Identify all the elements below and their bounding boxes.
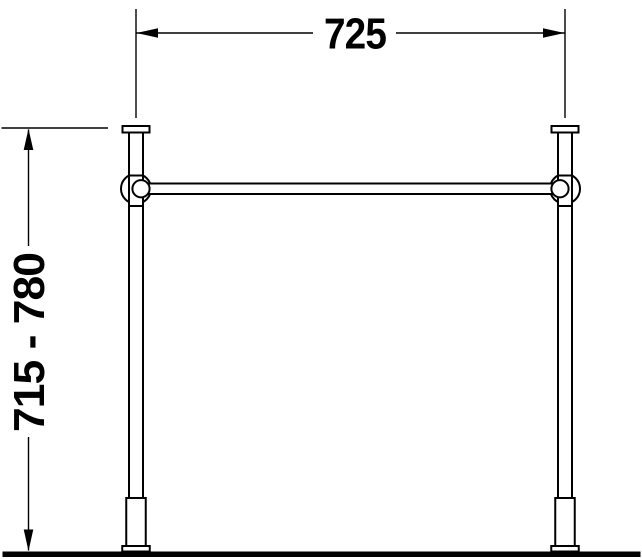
width-dimension-label: 725	[324, 10, 386, 59]
height-dimension: 715 - 780	[2, 128, 109, 551]
right-leg-top-cap	[552, 126, 579, 133]
width-arrow-left-icon	[137, 28, 159, 38]
right-foot-plate	[551, 546, 579, 552]
height-arrow-up-icon	[24, 129, 34, 150]
stand-structure	[3, 126, 641, 557]
crossbar-body	[141, 184, 560, 195]
technical-drawing-canvas: 725 715 - 780	[0, 0, 642, 559]
height-dimension-label: 715 - 780	[5, 253, 54, 432]
height-arrow-down-icon	[24, 530, 34, 552]
width-arrow-right-icon	[543, 28, 565, 38]
left-crossbar-ball-end	[132, 180, 149, 197]
ground-line	[3, 552, 641, 558]
left-foot-plate	[122, 546, 150, 552]
right-crossbar-ball-end	[551, 180, 568, 197]
left-leg-top-cap	[123, 126, 150, 133]
right-leg-adjustable-sleeve	[555, 498, 575, 546]
left-leg-adjustable-sleeve	[126, 498, 146, 546]
width-dimension: 725	[136, 9, 565, 118]
console-stand-drawing: 725 715 - 780	[0, 0, 642, 559]
